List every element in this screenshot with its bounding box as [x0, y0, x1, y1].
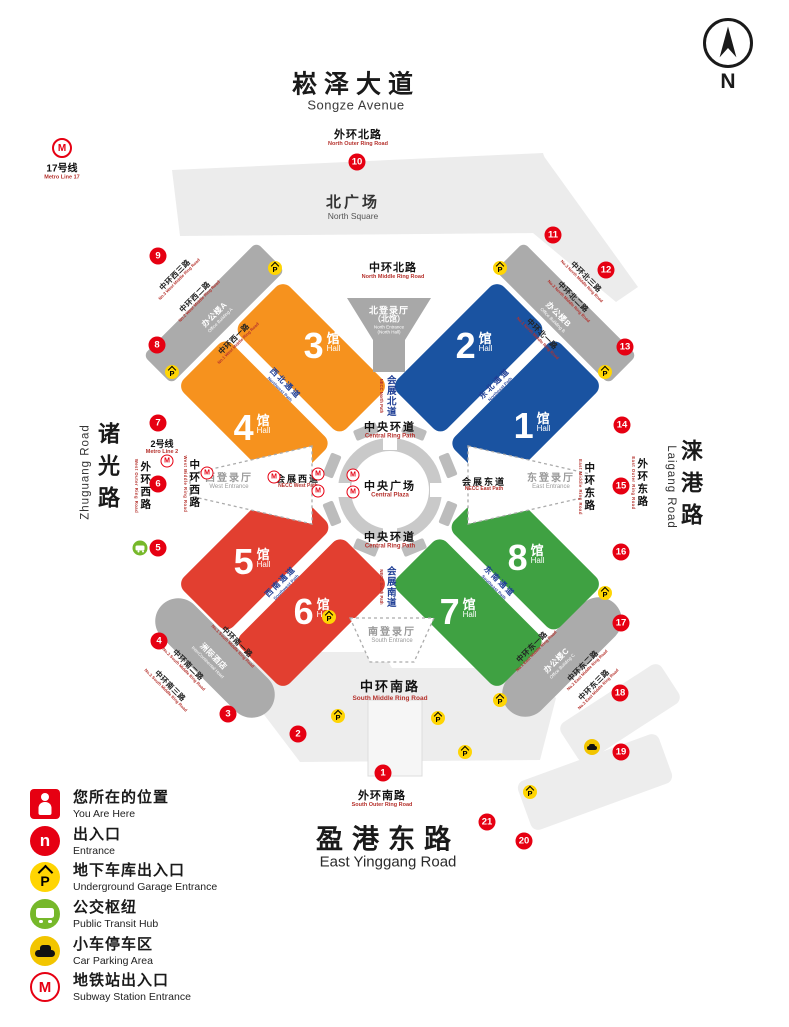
- road-south-outer-ring: 外环南路 South Outer Ring Road: [352, 790, 413, 808]
- necc-north-path-zh: 会展北道: [385, 375, 395, 417]
- ring-gap-east: [430, 483, 448, 497]
- garage-entrance-icon: P: [523, 785, 537, 799]
- garage-entrance-icon: P: [268, 261, 282, 275]
- north-square-label: 北广场 North Square: [326, 195, 380, 221]
- entrance-number-10: 10: [349, 154, 366, 171]
- subway-station-icon: M: [312, 468, 325, 481]
- garage-entrance-icon: P: [331, 709, 345, 723]
- garage-entrance-icon: P: [493, 693, 507, 707]
- garage-entrance-icon: P: [30, 862, 60, 892]
- entrance-number-2: 2: [290, 726, 307, 743]
- hall-5-label: 5 馆Hall: [234, 546, 271, 578]
- road-west-outer-en: West Outer Ring Road: [134, 459, 138, 513]
- hall-1-label: 1 馆Hall: [514, 410, 551, 442]
- road-yinggang: 盈港东路 East Yinggang Road: [316, 824, 460, 871]
- legend-subway: M 地铁站出入口Subway Station Entrance: [30, 972, 191, 1003]
- necc-site-map: N 崧泽大道 Songze Avenue 外环北路 North Outer Ri…: [0, 0, 789, 1027]
- entrance-number-17: 17: [613, 615, 630, 632]
- north-entrance-label: 北登录厅 （北馆） North Entrance (North Hall): [369, 305, 409, 334]
- garage-entrance-icon: P: [598, 365, 612, 379]
- road-west-middle-en: West Middle Ring Road: [183, 456, 187, 513]
- legend-garage: P 地下车库出入口Underground Garage Entrance: [30, 862, 217, 893]
- hall-3-label: 3 馆Hall: [304, 330, 341, 362]
- entrance-number-11: 11: [545, 227, 562, 244]
- east-entrance-label: 东登录厅 East Entrance: [527, 473, 575, 491]
- road-east-middle-zh: 中环东路: [584, 462, 595, 512]
- hall-7-label: 7 馆Hall: [440, 596, 477, 628]
- metro-line2-icon: M: [161, 455, 174, 468]
- legend-you-are-here: 您所在的位置You Are Here: [30, 789, 169, 820]
- central-plaza-label: 中央广场 Central Plaza: [364, 480, 416, 499]
- garage-entrance-icon: P: [165, 365, 179, 379]
- necc-south-path-en: NECC South Path: [379, 569, 383, 604]
- road-zhuguang-zh: 诸光路: [96, 422, 118, 518]
- entrance-icon: n: [30, 826, 60, 856]
- compass-n-label: N: [703, 70, 753, 94]
- road-east-middle-en: East Middle Ring Road: [578, 459, 582, 515]
- road-west-outer-zh: 外环西路: [140, 461, 151, 511]
- road-zhuguang-en: Zhuguang Road: [80, 424, 93, 519]
- entrance-number-20: 20: [516, 833, 533, 850]
- south-entrance-label: 南登录厅 South Entrance: [368, 627, 416, 645]
- entrance-number-6: 6: [150, 476, 167, 493]
- garage-entrance-icon: P: [458, 745, 472, 759]
- entrance-number-13: 13: [617, 339, 634, 356]
- hall-2-label: 2 馆Hall: [456, 330, 493, 362]
- bus-hub-icon: [30, 899, 60, 929]
- road-east-outer-en: East Outer Ring Road: [631, 456, 635, 509]
- entrance-number-8: 8: [149, 337, 166, 354]
- subway-station-icon: M: [30, 972, 60, 1002]
- entrance-number-19: 19: [613, 744, 630, 761]
- entrance-number-12: 12: [598, 262, 615, 279]
- road-laigang-en: Laigang Road: [664, 445, 676, 529]
- central-ring-path-label-top: 中央环道 Central Ring Path: [364, 421, 416, 440]
- central-ring-path-label-bottom: 中央环道 Central Ring Path: [364, 531, 416, 550]
- subway-station-icon: M: [201, 467, 214, 480]
- road-south-middle-ring: 中环南路 South Middle Ring Road: [352, 680, 427, 702]
- legend-entrance: n 出入口Entrance: [30, 826, 121, 857]
- subway-station-icon: M: [312, 485, 325, 498]
- necc-east-path-label: 会展东道 NECC East Path: [462, 477, 506, 493]
- entrance-number-18: 18: [612, 685, 629, 702]
- road-north-outer-ring: 外环北路 North Outer Ring Road: [328, 129, 388, 147]
- north-arrow-icon: [713, 25, 743, 61]
- entrance-number-21: 21: [479, 814, 496, 831]
- entrance-number-16: 16: [613, 544, 630, 561]
- hall-4-label: 4 馆Hall: [234, 412, 271, 444]
- entrance-number-5: 5: [150, 540, 167, 557]
- compass: N: [703, 18, 753, 94]
- car-parking-icon: [584, 739, 600, 755]
- necc-south-path-zh: 会展南道: [385, 566, 395, 608]
- road-west-middle-zh: 中环西路: [189, 459, 200, 509]
- road-north-middle-ring: 中环北路 North Middle Ring Road: [362, 262, 425, 280]
- road-songze-avenue: 崧泽大道 Songze Avenue: [292, 71, 420, 114]
- garage-entrance-icon: P: [322, 610, 336, 624]
- road-east-outer-zh: 外环东路: [637, 458, 648, 508]
- garage-entrance-icon: P: [598, 586, 612, 600]
- garage-entrance-icon: P: [493, 261, 507, 275]
- entrance-number-4: 4: [151, 633, 168, 650]
- legend-bus: 公交枢纽Public Transit Hub: [30, 899, 158, 930]
- necc-north-path-en: NECC North Path: [379, 379, 383, 413]
- bus-hub-icon: [133, 541, 148, 556]
- legend-car: 小车停车区Car Parking Area: [30, 936, 153, 967]
- entrance-number-3: 3: [220, 706, 237, 723]
- hall-8-label: 8 馆Hall: [508, 542, 545, 574]
- subway-station-icon: M: [347, 486, 360, 499]
- road-laigang-zh: 涞港路: [679, 439, 701, 535]
- car-parking-icon: [30, 936, 60, 966]
- entrance-number-15: 15: [613, 478, 630, 495]
- subway-station-icon: M: [347, 469, 360, 482]
- entrance-number-9: 9: [150, 248, 167, 265]
- metro-line17-icon: M: [52, 138, 72, 158]
- subway-station-icon: M: [268, 471, 281, 484]
- metro-line17-label: 17号线 Metro Line 17: [44, 163, 79, 180]
- garage-entrance-icon: P: [431, 711, 445, 725]
- metro-line2-label: 2号线 Metro Line 2: [146, 439, 178, 455]
- entrance-number-7: 7: [150, 415, 167, 432]
- you-are-here-icon: [30, 789, 60, 819]
- entrance-number-1: 1: [375, 765, 392, 782]
- compass-circle: [703, 18, 753, 68]
- entrance-number-14: 14: [614, 417, 631, 434]
